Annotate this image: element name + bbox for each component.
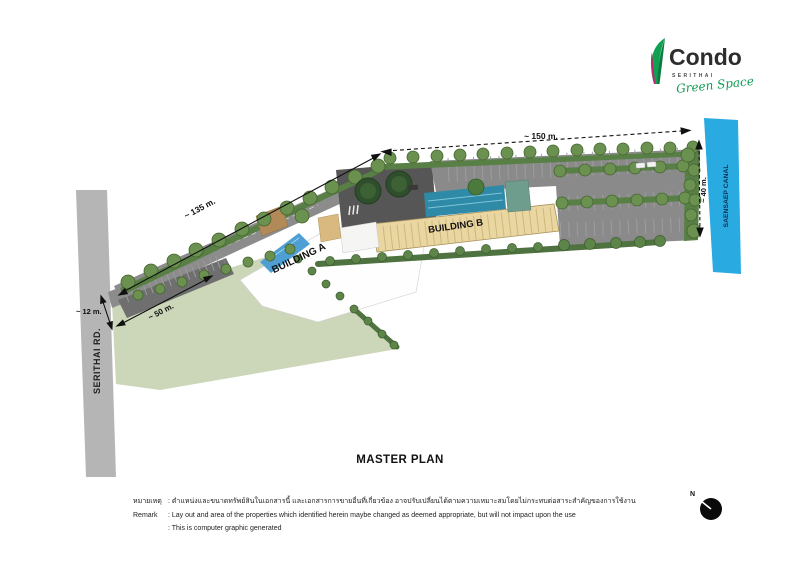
arrowhead: [681, 128, 690, 134]
dim-label-150m: ~ 150 m.: [524, 131, 558, 141]
page-title: MASTER PLAN: [0, 454, 800, 466]
north-indicator: N: [684, 489, 730, 529]
dim-label-12m: ~ 12 m.: [76, 307, 102, 316]
canal-label: SAENSAEP CANAL: [723, 165, 730, 228]
remark-thai-label: หมายเหตุ: [133, 495, 168, 509]
dim-label-135m: ~ 135 m.: [182, 196, 217, 221]
north-label: N: [690, 491, 695, 498]
logo-leaf-icon: [646, 38, 670, 88]
dim-label-40m: ~ 40 m.: [699, 177, 708, 203]
master-plan-page: ~ 150 m. ~ 135 m. ~ 50 m. ~ 12 m. ~ 40 m…: [0, 0, 800, 563]
remark-thai-text: : ตำแหน่งและขนาดทรัพย์สินในเอกสารนี้ และ…: [168, 498, 636, 505]
remark-en-text: : Lay out and area of the properties whi…: [168, 512, 576, 519]
remark-en-label: Remark: [133, 509, 168, 523]
pavilion-block: [318, 214, 341, 242]
remark-row-en2: : This is computer graphic generated: [133, 522, 636, 536]
logo-brand-text: Condo: [669, 44, 742, 71]
green-roof-block: [505, 180, 531, 212]
remark-en-text2: : This is computer graphic generated: [168, 525, 282, 532]
remark-block: หมายเหตุ: ตำแหน่งและขนาดทรัพย์สินในเอกสา…: [133, 495, 636, 536]
road-label: SERITHAI RD.: [92, 328, 102, 394]
remark-row-en: Remark: Lay out and area of the properti…: [133, 509, 636, 523]
remark-row-thai: หมายเหตุ: ตำแหน่งและขนาดทรัพย์สินในเอกสา…: [133, 495, 636, 509]
icondo-logo: Condo SERITHAI Green Space: [646, 38, 741, 96]
